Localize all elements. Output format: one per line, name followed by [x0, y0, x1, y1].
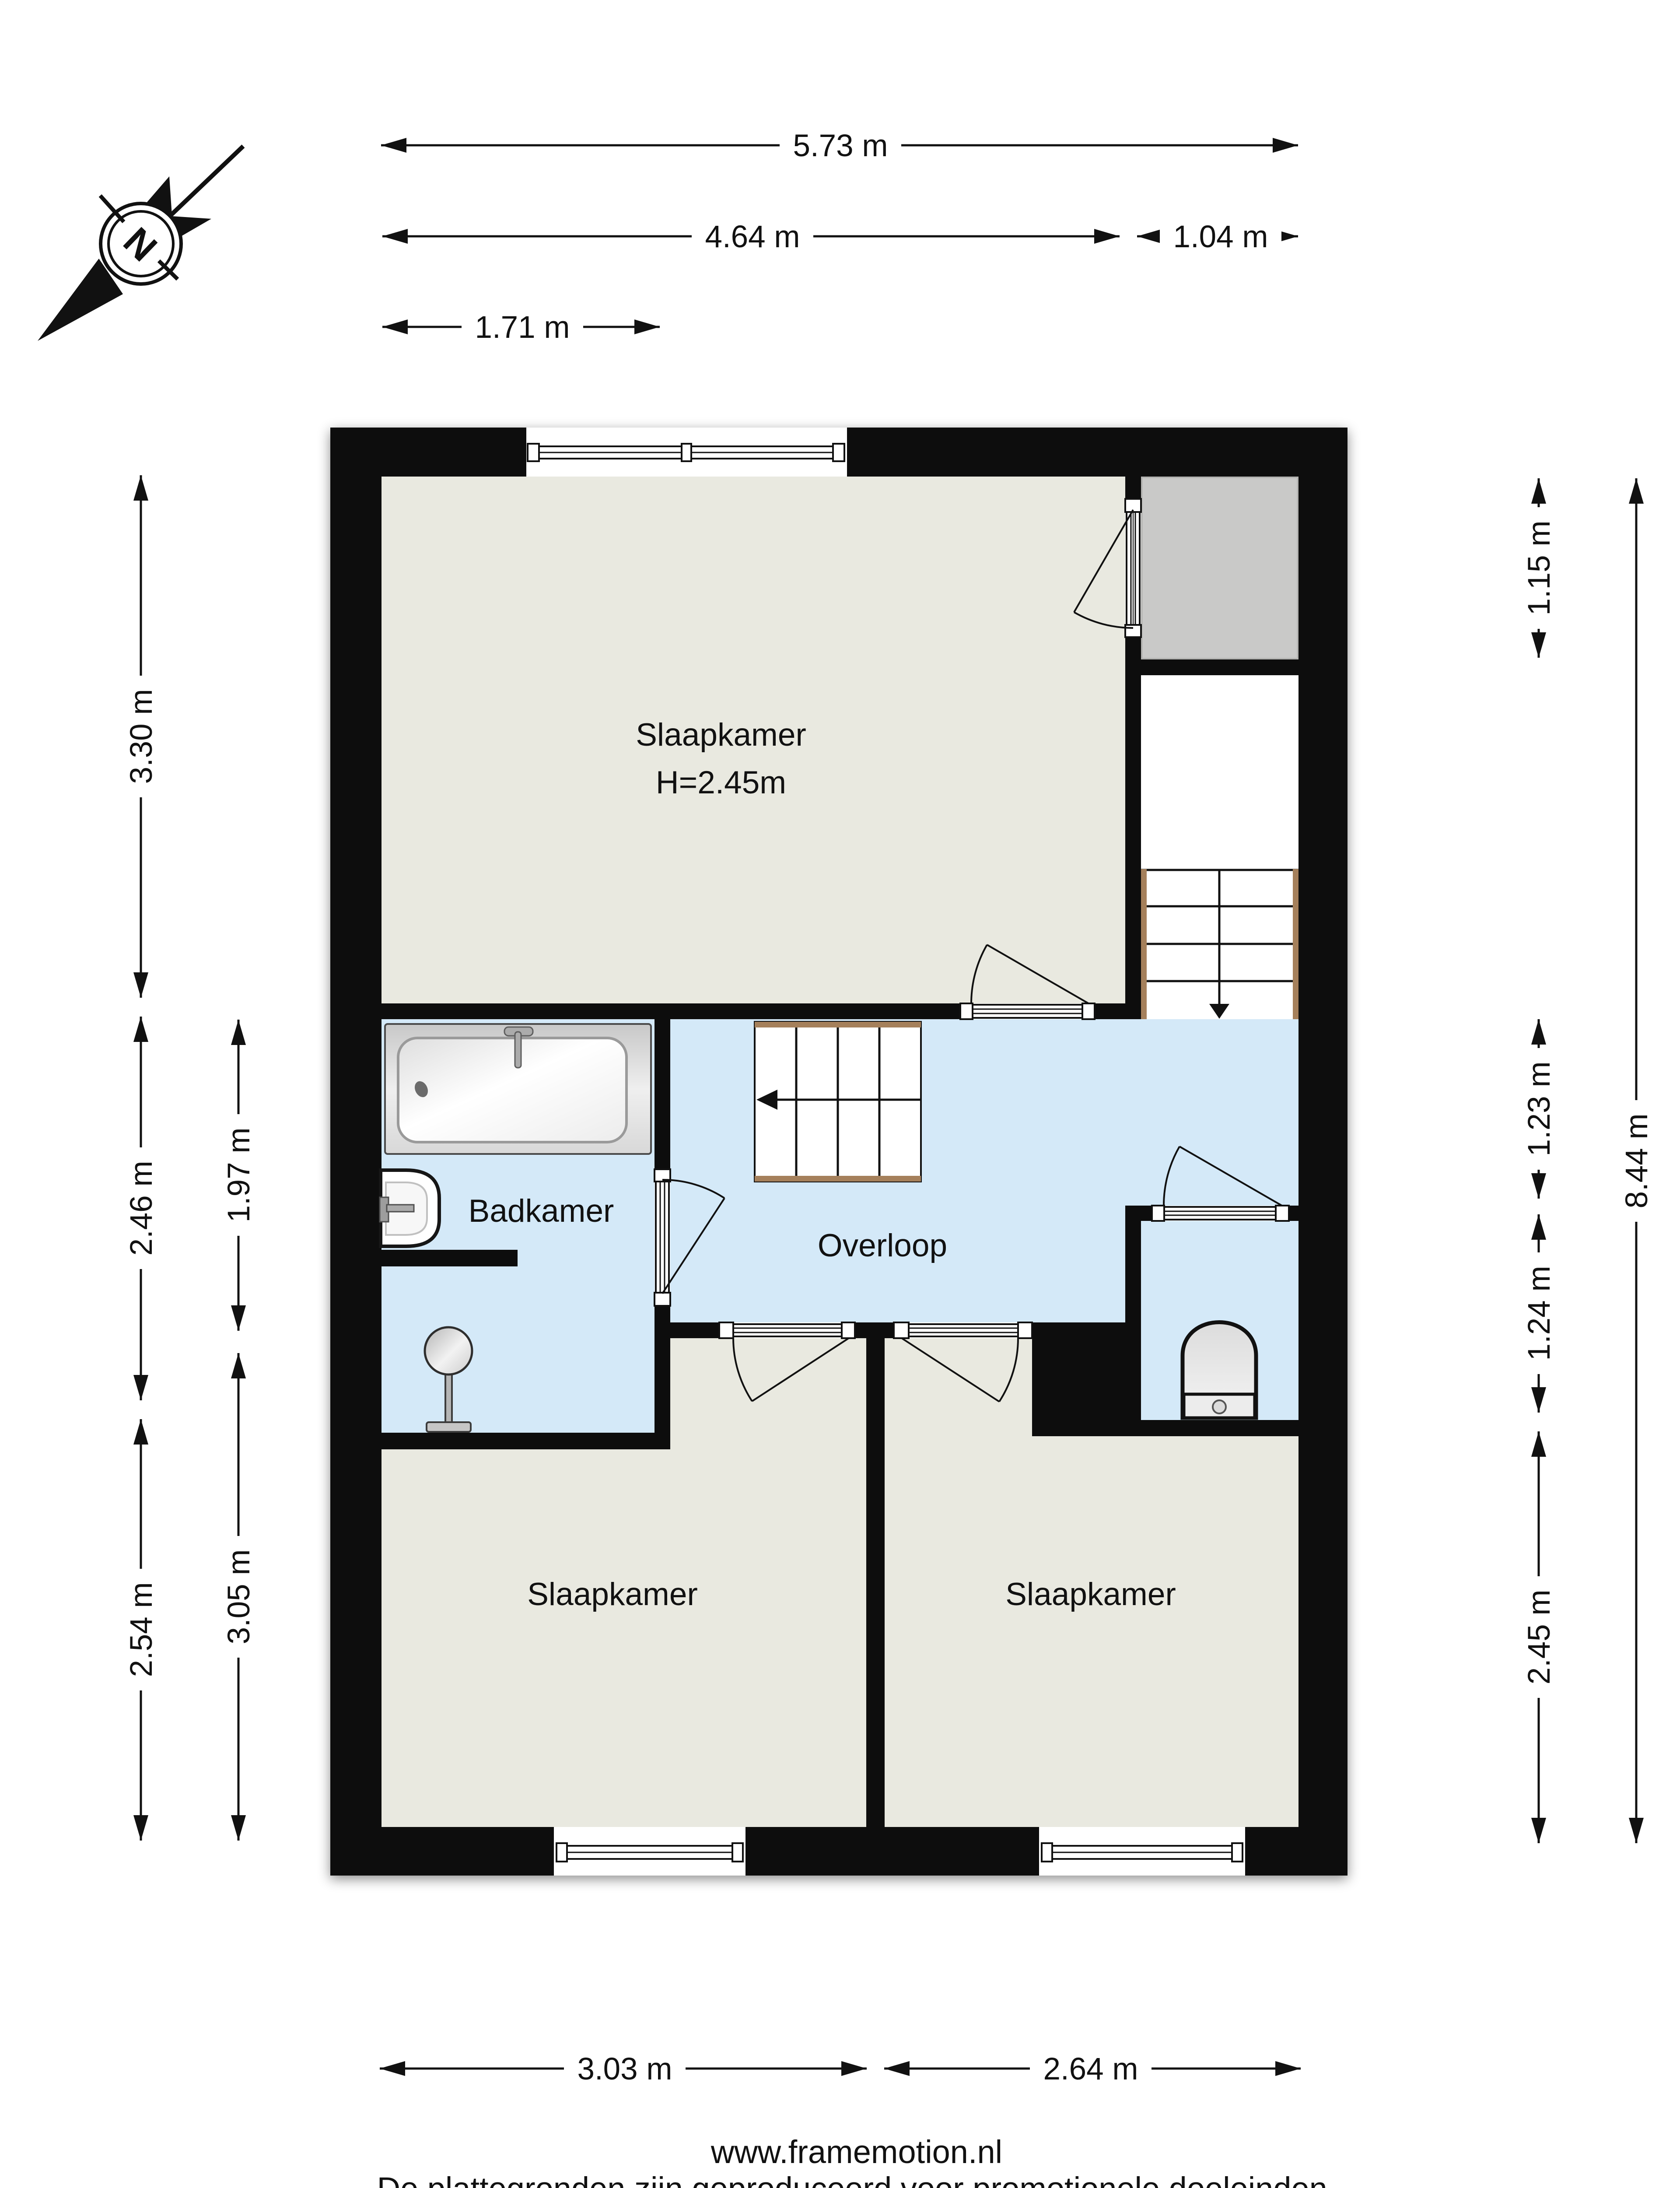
svg-text:3.30 m: 3.30 m: [124, 689, 159, 784]
svg-text:4.64 m: 4.64 m: [705, 220, 800, 254]
svg-text:Slaapkamer: Slaapkamer: [636, 717, 806, 753]
svg-text:Slaapkamer: Slaapkamer: [527, 1577, 698, 1612]
svg-text:Badkamer: Badkamer: [469, 1193, 614, 1229]
svg-text:H=2.45m: H=2.45m: [656, 765, 786, 800]
svg-text:1.71 m: 1.71 m: [475, 310, 570, 345]
svg-text:www.framemotion.nl: www.framemotion.nl: [710, 2134, 1002, 2170]
svg-text:2.64 m: 2.64 m: [1043, 2052, 1138, 2086]
svg-text:8.44 m: 8.44 m: [1620, 1113, 1654, 1208]
svg-text:Slaapkamer: Slaapkamer: [1005, 1577, 1176, 1612]
svg-text:1.15 m: 1.15 m: [1522, 520, 1557, 615]
svg-text:1.04 m: 1.04 m: [1173, 220, 1268, 254]
svg-text:3.05 m: 3.05 m: [222, 1549, 256, 1644]
svg-text:2.46 m: 2.46 m: [124, 1161, 159, 1255]
svg-text:Overloop: Overloop: [818, 1228, 947, 1263]
svg-text:3.03 m: 3.03 m: [577, 2052, 672, 2086]
svg-text:2.54 m: 2.54 m: [124, 1582, 159, 1677]
svg-text:2.45 m: 2.45 m: [1522, 1589, 1557, 1684]
svg-text:1.23 m: 1.23 m: [1522, 1061, 1557, 1156]
svg-text:5.73 m: 5.73 m: [793, 129, 888, 163]
svg-text:1.97 m: 1.97 m: [222, 1127, 256, 1222]
svg-text:De plattegronden zijn geproduc: De plattegronden zijn geproduceerd voor …: [377, 2170, 1337, 2188]
svg-text:1.24 m: 1.24 m: [1522, 1266, 1557, 1360]
